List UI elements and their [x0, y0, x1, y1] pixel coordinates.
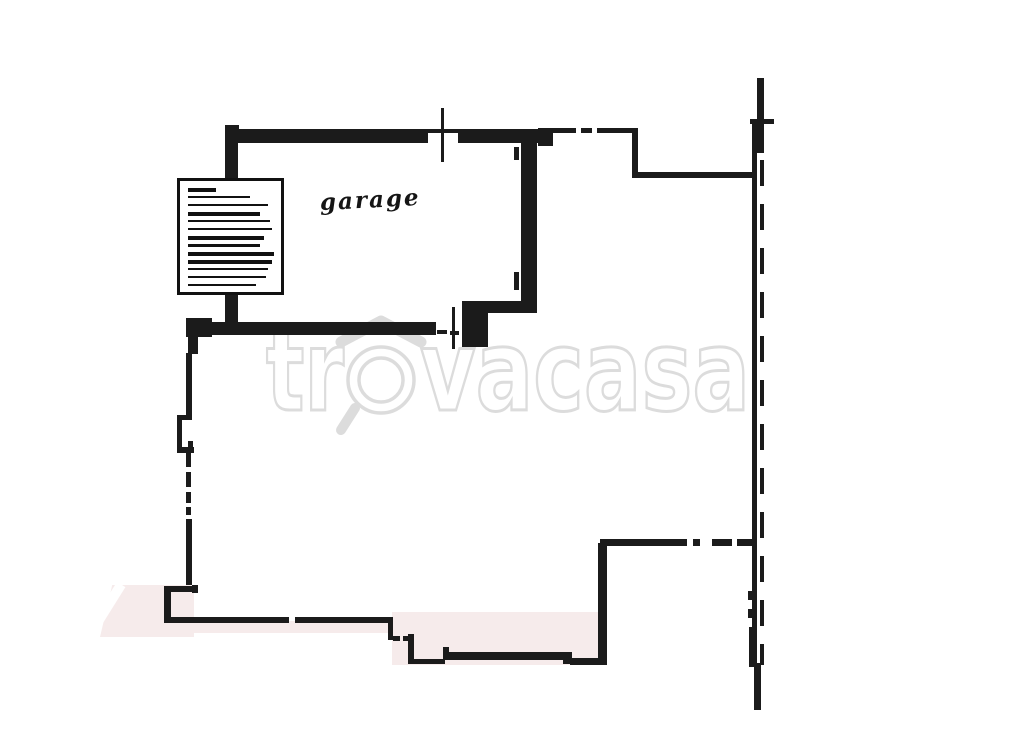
stair-tread	[188, 188, 216, 192]
middle-horizontal-wall	[712, 539, 732, 546]
stair-tread	[188, 268, 268, 270]
garage-top-wall	[225, 129, 428, 143]
bottom-wall	[412, 659, 445, 664]
garage-bottom-block	[462, 313, 488, 347]
middle-vertical-wall	[598, 543, 607, 665]
top-connector-wall	[581, 128, 592, 133]
door-dash	[450, 331, 459, 335]
wall-segment	[188, 337, 198, 354]
pilaster-notch	[188, 441, 193, 447]
stair-tread	[188, 220, 270, 222]
right-wall-thick	[749, 627, 757, 667]
top-connector-wall	[638, 172, 755, 178]
top-connector-step	[632, 128, 638, 178]
bottom-wall	[295, 617, 392, 623]
middle-horizontal-wall	[693, 539, 700, 546]
stair-tread	[188, 276, 266, 278]
staircase	[177, 178, 284, 295]
garage-bottom-wall	[210, 322, 436, 335]
room-label-garage: garage	[319, 183, 441, 223]
window-tick	[441, 108, 444, 162]
stair-tread	[188, 252, 274, 256]
left-wall-dash	[186, 507, 191, 515]
door-dash	[437, 330, 447, 334]
garage-right-wall	[521, 129, 537, 313]
right-wall-dashed-line	[760, 160, 764, 665]
left-wall-dash	[186, 472, 191, 487]
wall-tick	[514, 147, 519, 160]
wall-dash	[748, 591, 755, 600]
magnifier-icon	[341, 347, 414, 430]
bottom-wall	[443, 652, 563, 660]
bottom-wall	[164, 617, 289, 623]
wall-dash	[748, 609, 755, 618]
stair-tread	[188, 260, 272, 264]
right-wall-stub-bottom	[754, 663, 761, 710]
floor-plan-canvas: tr vacasa	[0, 0, 1024, 756]
door-tick	[452, 307, 455, 349]
stair-tread	[188, 236, 264, 240]
stair-tread	[188, 284, 256, 286]
middle-horizontal-wall	[600, 539, 687, 546]
wall-corner	[538, 133, 553, 146]
stair-tread	[188, 228, 272, 230]
wall-corner	[186, 318, 212, 337]
bottom-wall	[570, 658, 600, 665]
garage-bottom-arm	[462, 301, 537, 313]
wall-tick	[514, 272, 519, 290]
wall-tick	[192, 585, 198, 593]
stair-tread	[188, 244, 260, 247]
left-wall-dash	[186, 453, 191, 467]
left-wall	[186, 353, 192, 415]
stair-tread	[188, 204, 268, 206]
stair-tread	[188, 196, 250, 198]
left-wall-dash	[186, 492, 191, 503]
wall-dash	[393, 636, 400, 641]
right-wall	[752, 120, 757, 667]
left-wall	[186, 519, 192, 585]
stair-tread	[188, 212, 260, 216]
right-wall-stub-top	[757, 78, 764, 153]
